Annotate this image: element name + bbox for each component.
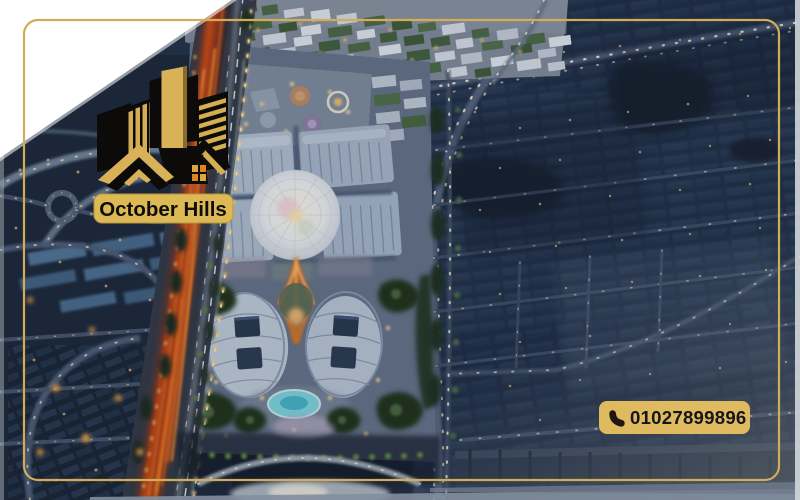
svg-text:01027899896: 01027899896	[630, 407, 747, 428]
svg-text:October Hills: October Hills	[99, 198, 227, 221]
